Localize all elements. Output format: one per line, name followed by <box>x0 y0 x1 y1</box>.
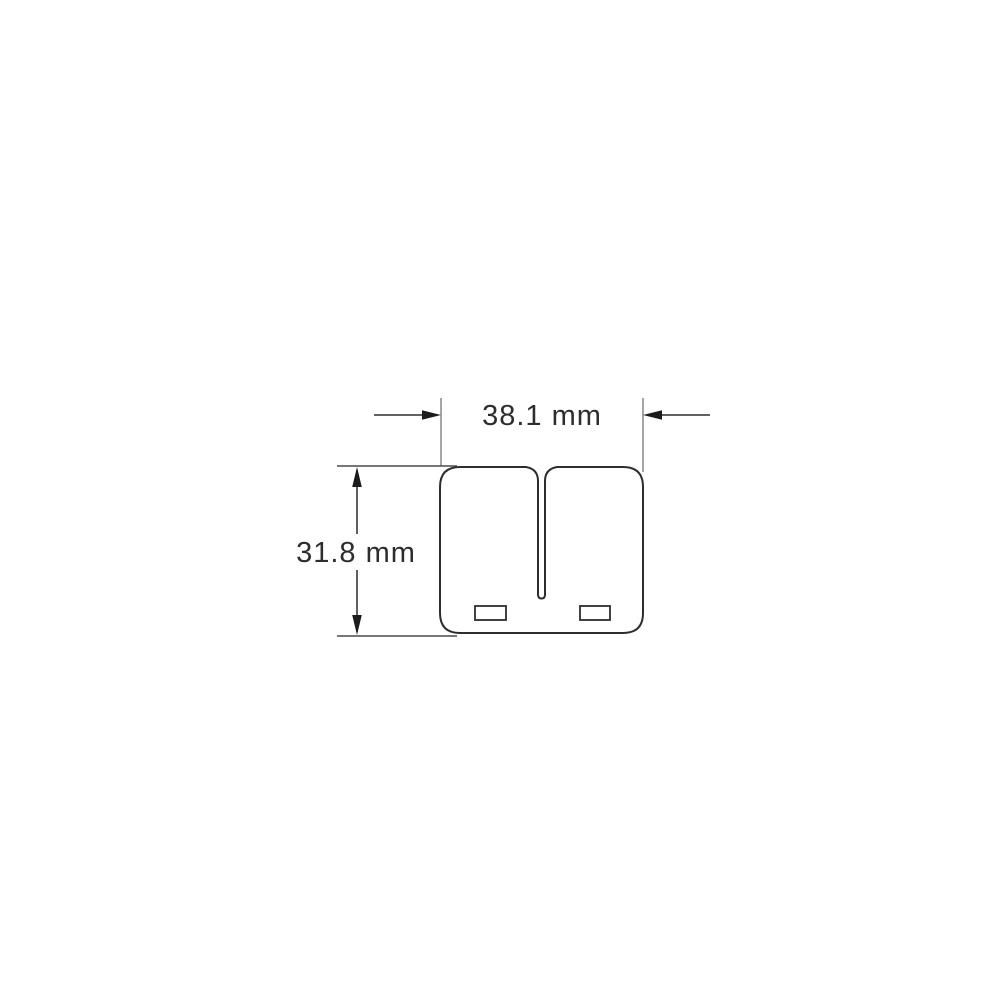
height-dimension: 31.8 mm <box>296 466 457 636</box>
arrow-right-icon <box>422 410 441 420</box>
arrow-left-icon <box>643 410 662 420</box>
reed-petal-dimension-drawing: 38.1 mm 31.8 mm <box>0 0 1000 1000</box>
width-dimension: 38.1 mm <box>374 398 710 472</box>
height-dimension-label: 31.8 mm <box>296 537 416 569</box>
arrow-down-icon <box>352 615 362 635</box>
cutout-rect-left <box>475 606 506 620</box>
cutout-rect-right <box>580 606 610 620</box>
technical-drawing-canvas: 38.1 mm 31.8 mm <box>0 0 1000 1000</box>
arrow-up-icon <box>352 467 362 487</box>
reed-petal-outline <box>440 467 643 633</box>
width-dimension-label: 38.1 mm <box>482 400 602 432</box>
